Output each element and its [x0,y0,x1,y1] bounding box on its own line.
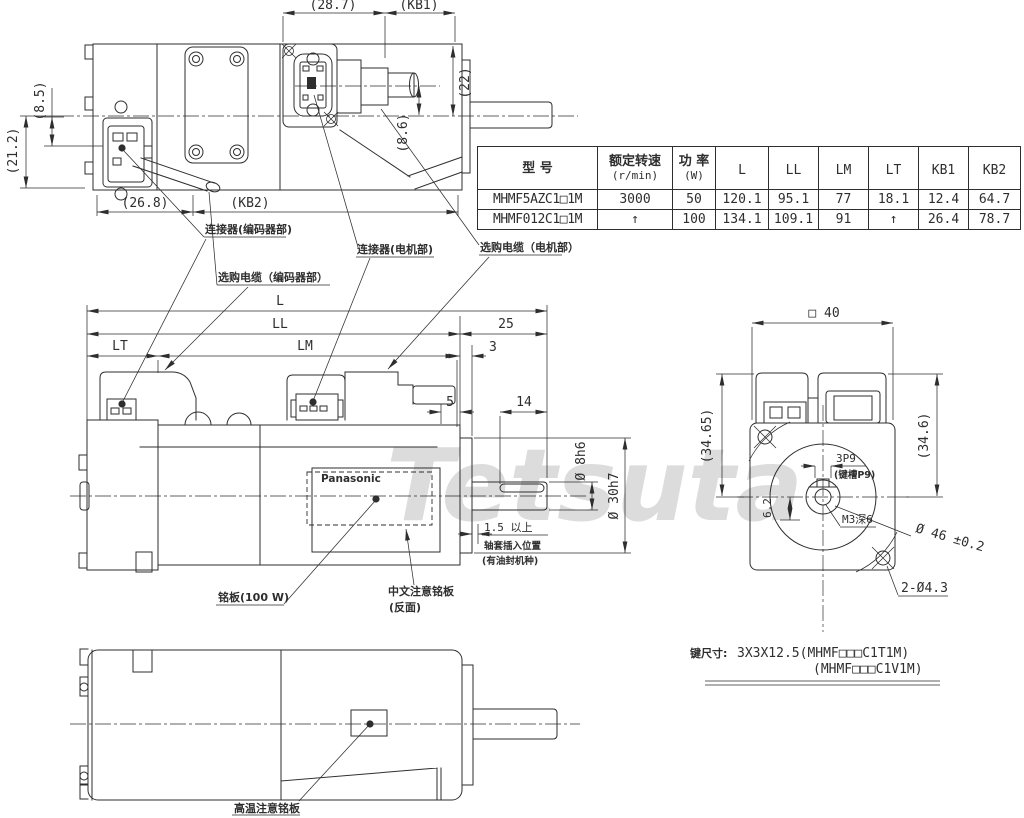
cell: 12.4 [919,190,969,210]
col-L: L [716,147,769,190]
col-power: 功 率(W) [673,147,716,190]
dim-34-6: (34.6) [917,413,932,460]
keynote-prefix: 键尺寸: [689,646,727,660]
dim-keyway-3p9: 3P9 [836,452,856,465]
dim-shaft-dia: Ø 8h6 [574,441,589,480]
top-motor-connector [282,44,338,127]
col-LL: LL [769,147,819,190]
label-high-temp-plate: 高温注意铭板 [234,801,301,815]
top-mounting-plate [185,47,248,163]
col-model: 型 号 [478,147,598,190]
col-KB1: KB1 [919,147,969,190]
panasonic-logo: Panasonic [321,473,381,485]
key-size-note: 键尺寸: 3X3X12.5(MHMF□□□C1T1M) (MHMF□□□C1V1… [689,646,940,685]
dim-26-8: (26.8) [122,196,169,211]
top-view-dimensions: (28.7) (KB1) (8.5) (21.2) (22) (8.6) (26… [6,0,473,216]
cell: 3000 [598,190,673,210]
cell: 50 [673,190,716,210]
cell: 91 [819,210,869,230]
top-cable-boot [337,60,419,113]
label-keyslot-p9: (键槽P9) [834,469,875,481]
motor-dimension-drawing: Tetsuta [0,0,1024,818]
label-backside: (反面) [389,600,421,614]
label-nameplate: 铭板(100 W) [218,590,289,604]
dim-25: 25 [498,317,514,332]
cell: 120.1 [716,190,769,210]
dim-LL: LL [272,317,288,332]
dim-21-2: (21.2) [6,128,21,175]
dim-bolt-circle-46: Ø 46 ±0.2 [914,521,986,555]
cell: 109.1 [769,210,819,230]
label-shaft-sleeve: 轴套插入位置 [484,540,542,552]
col-KB2: KB2 [969,147,1021,190]
spec-table-header-row: 型 号 额定转速(r/min) 功 率(W) L LL LM LT KB1 KB… [478,147,1021,190]
dim-kb2: (KB2) [230,196,269,211]
callout-labels: 连接器(编码器部) 选购电缆（编码器部） 连接器(电机部) 选购电缆（电机部） [118,95,579,408]
dim-LM: LM [297,339,313,354]
cell: 78.7 [969,210,1021,230]
dim-6-2: 6.2 [761,498,774,518]
label-oil-seal: (有油封机种) [482,555,538,567]
bottom-view: 高温注意铭板 [70,649,580,815]
dim-5: 5 [446,395,454,410]
label-cn-caution-plate: 中文注意铭板 [388,584,455,598]
cell: 134.1 [716,210,769,230]
drawing-canvas: Tetsuta [0,0,1024,818]
dim-holes-4-3: 2-Ø4.3 [901,581,948,596]
label-cable-motor: 选购电缆（电机部） [480,240,579,254]
cell: 26.4 [919,210,969,230]
dim-8-5: (8.5) [33,81,48,120]
col-LT: LT [869,147,919,190]
keynote-line2: (MHMF□□□C1V1M) [813,662,923,677]
dim-28-7: (28.7) [310,0,357,13]
watermark-text: Tetsuta [386,427,803,544]
cell: 95.1 [769,190,819,210]
dim-1-5-min: 1.5 以上 [484,521,533,534]
label-connector-motor: 连接器(电机部) [357,242,433,256]
cell: ↑ [598,210,673,230]
dim-14: 14 [516,395,532,410]
col-rated-speed: 额定转速(r/min) [598,147,673,190]
dim-22: (22) [458,67,473,98]
side-view: Panasonic L LL 25 LT LM 3 5 [70,294,631,614]
dim-34-65: (34.65) [700,409,715,464]
col-LM: LM [819,147,869,190]
dim-square-40: □ 40 [808,306,839,321]
label-connector-encoder: 连接器(编码器部) [205,222,292,236]
dim-pilot-dia: Ø 30h7 [607,473,622,520]
cell: 18.1 [869,190,919,210]
cell: 64.7 [969,190,1021,210]
dim-LT: LT [112,339,128,354]
cell: ↑ [869,210,919,230]
cell: 100 [673,210,716,230]
dim-kb1: (KB1) [399,0,438,13]
spec-table-row-1: MHMF5AZC1□1M 3000 50 120.1 95.1 77 18.1 … [478,190,1021,210]
dim-3: 3 [489,340,497,355]
cell-model-2: MHMF012C1□1M [478,210,598,230]
spec-table-row-2: MHMF012C1□1M ↑ 100 134.1 109.1 91 ↑ 26.4… [478,210,1021,230]
cell: 77 [819,190,869,210]
cell-model-1: MHMF5AZC1□1M [478,190,598,210]
dim-L: L [276,294,284,309]
keynote-line1: 3X3X12.5(MHMF□□□C1T1M) [737,646,909,661]
spec-table: 型 号 额定转速(r/min) 功 率(W) L LL LM LT KB1 KB… [477,146,1021,230]
label-cable-encoder: 选购电缆（编码器部） [218,270,328,284]
